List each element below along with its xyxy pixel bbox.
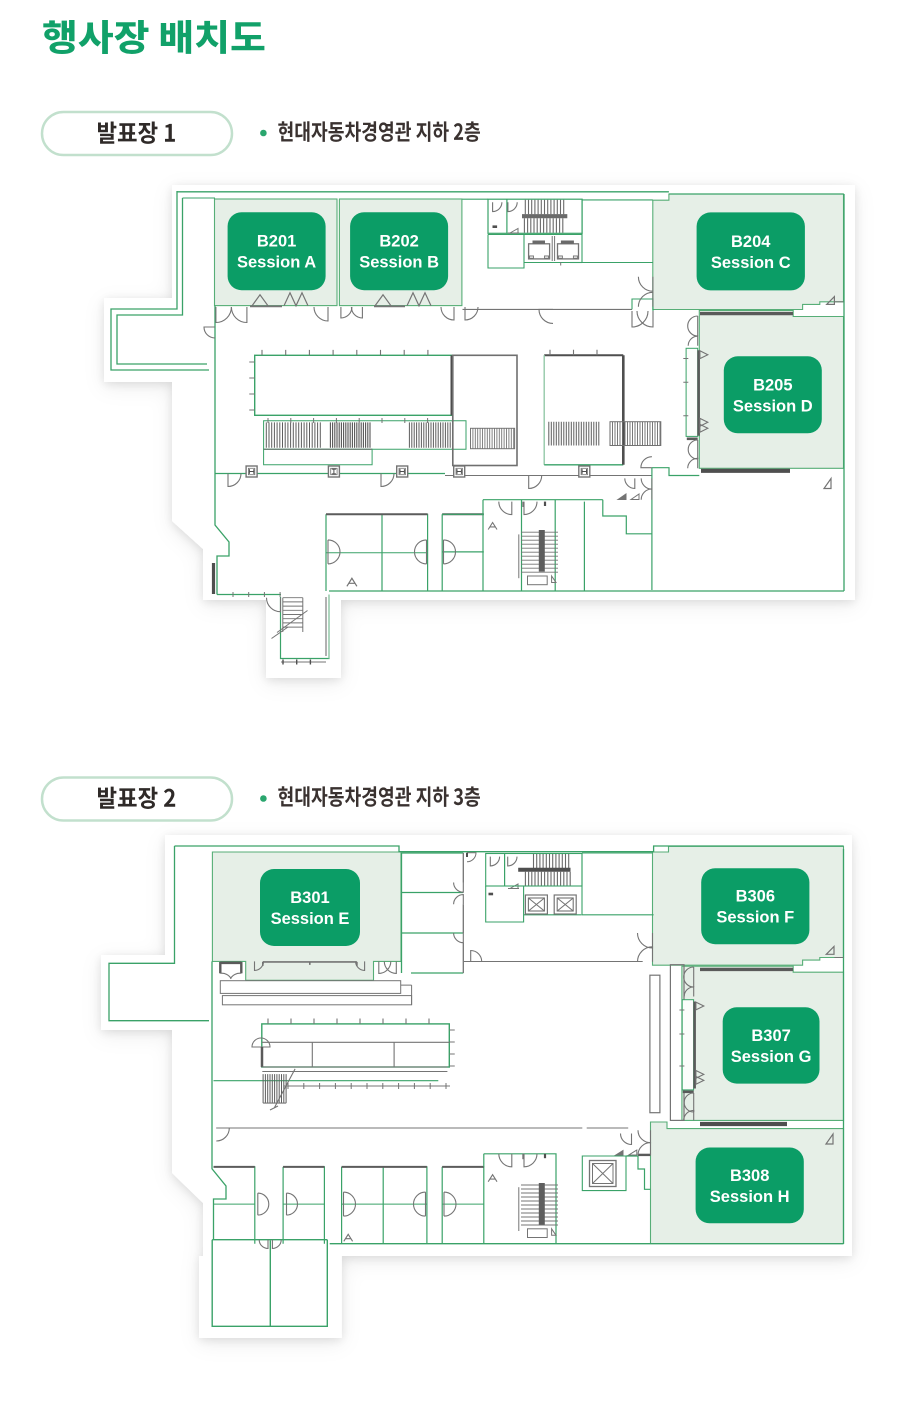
svg-text:Session C: Session C <box>711 254 791 272</box>
svg-text:B201: B201 <box>257 233 296 251</box>
svg-text:Session G: Session G <box>731 1048 812 1066</box>
svg-text:B306: B306 <box>736 888 775 906</box>
svg-text:B205: B205 <box>753 376 792 394</box>
svg-text:Session A: Session A <box>237 254 316 272</box>
svg-text:B204: B204 <box>731 233 771 251</box>
svg-text:Session F: Session F <box>716 909 794 927</box>
svg-text:Session E: Session E <box>271 910 350 928</box>
svg-text:Session D: Session D <box>733 397 813 415</box>
svg-text:B202: B202 <box>379 233 418 251</box>
svg-text:B307: B307 <box>751 1027 790 1045</box>
svg-text:B301: B301 <box>290 889 329 907</box>
svg-text:Session H: Session H <box>710 1188 790 1206</box>
svg-text:Session B: Session B <box>359 254 439 272</box>
svg-text:B308: B308 <box>730 1167 769 1185</box>
